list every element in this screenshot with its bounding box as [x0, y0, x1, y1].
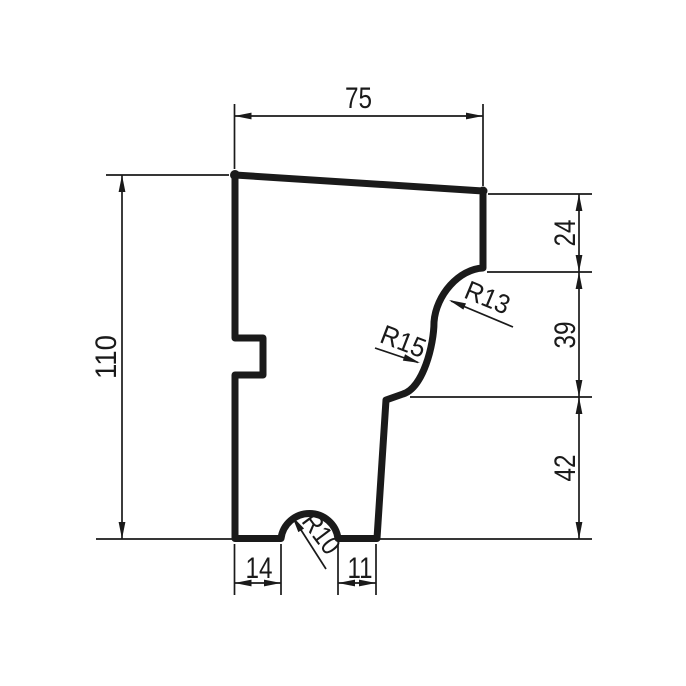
dimension-lines: [96, 104, 592, 595]
arrowhead: [466, 113, 483, 120]
arrowhead: [576, 522, 583, 539]
arrowhead: [576, 397, 583, 414]
arrowhead: [235, 113, 252, 120]
dim-42-label: 42: [549, 455, 582, 482]
radius-r15-label: R15: [376, 319, 430, 363]
arrowhead: [119, 175, 126, 192]
arrowhead: [119, 522, 126, 539]
arrowhead: [576, 272, 583, 289]
dimension-75: [235, 104, 484, 186]
drawing-page: 75 110 24 39 42 14 11 R13 R15 R10: [0, 0, 686, 686]
dim-75-label: 75: [345, 82, 372, 115]
dim-11-label: 11: [348, 552, 373, 585]
dimension-labels: 75 110 24 39 42 14 11 R13 R15 R10: [90, 82, 582, 585]
dim-24-label: 24: [549, 220, 582, 247]
dim-14-label: 14: [246, 552, 273, 585]
technical-drawing-canvas: 75 110 24 39 42 14 11 R13 R15 R10: [0, 0, 686, 686]
corner-dot-top-right: [479, 187, 488, 196]
profile-outline: [235, 175, 483, 539]
radius-r13-label: R13: [460, 275, 514, 320]
arrowhead: [576, 194, 583, 211]
arrowhead: [576, 255, 583, 272]
corner-dot-top-left: [230, 170, 240, 180]
dim-110-label: 110: [90, 335, 123, 379]
dim-39-label: 39: [549, 322, 582, 349]
profile-path: [235, 175, 483, 539]
arrowhead: [576, 380, 583, 397]
